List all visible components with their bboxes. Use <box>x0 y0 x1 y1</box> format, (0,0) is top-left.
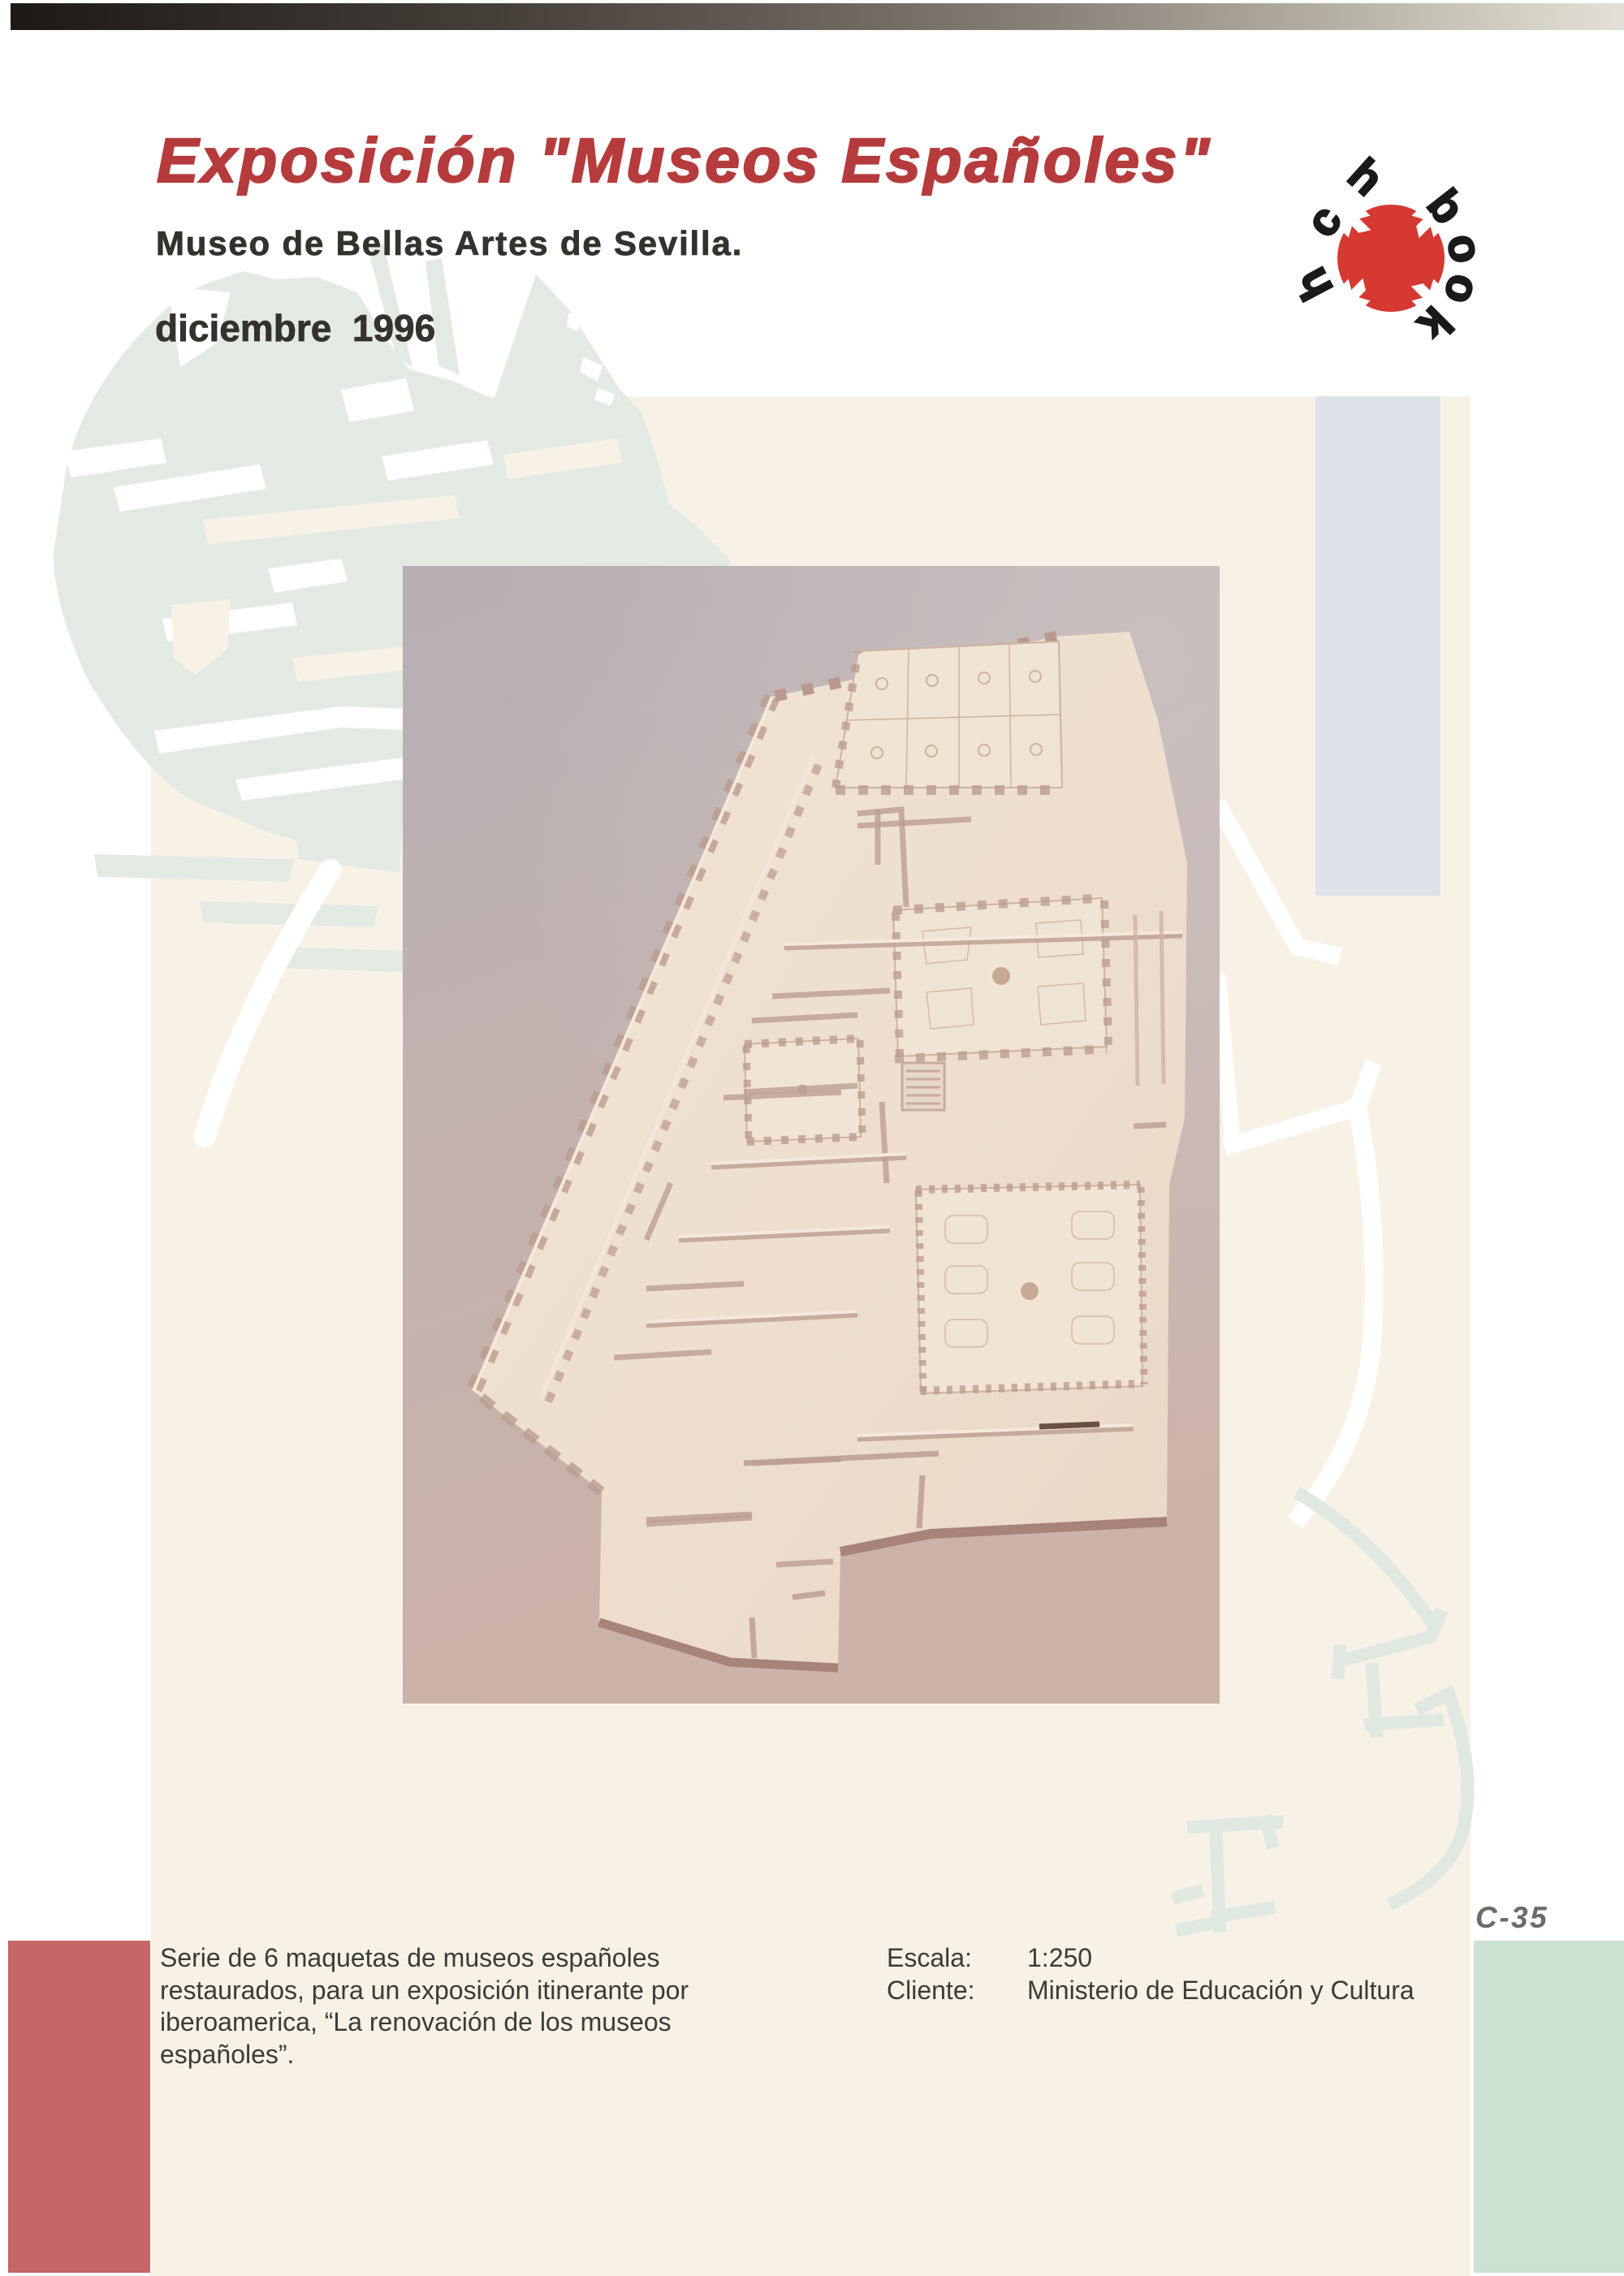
svg-text:o: o <box>1437 229 1478 267</box>
svg-text:h: h <box>1285 260 1343 309</box>
svg-text:o: o <box>1435 270 1478 309</box>
svg-text:h: h <box>1339 149 1394 205</box>
